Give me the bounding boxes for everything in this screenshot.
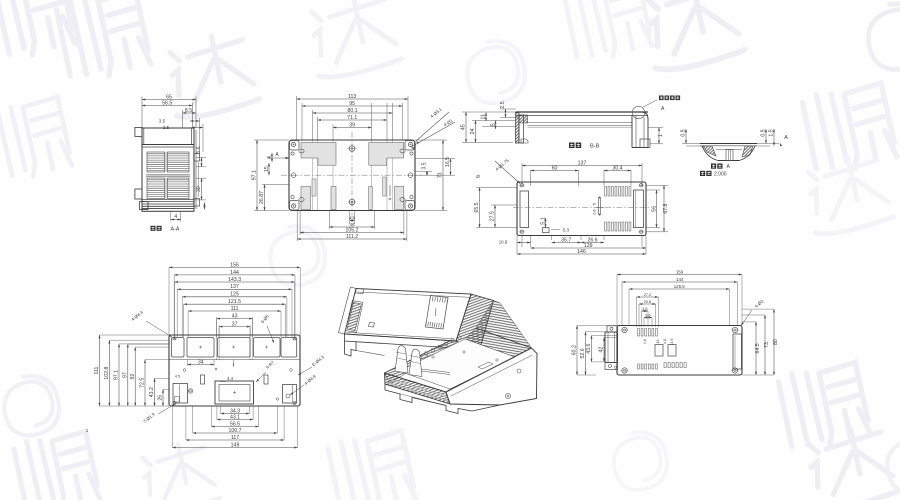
svg-text:27.5: 27.5 [490, 211, 496, 221]
svg-text:149: 149 [231, 442, 240, 448]
svg-text:80.1: 80.1 [347, 108, 357, 114]
svg-text:11: 11 [481, 114, 487, 119]
svg-text:5.3: 5.3 [563, 228, 570, 233]
svg-text:34: 34 [198, 359, 204, 365]
svg-text:143.3: 143.3 [228, 277, 241, 283]
svg-text:15: 15 [264, 166, 270, 172]
svg-text:A-A: A-A [171, 227, 180, 233]
svg-text:60.2: 60.2 [572, 345, 578, 355]
svg-text:4: 4 [267, 156, 273, 159]
svg-text:4.8: 4.8 [349, 216, 356, 221]
svg-text:43.1: 43.1 [230, 414, 240, 420]
svg-text:5.6: 5.6 [196, 146, 202, 153]
svg-text:4.8: 4.8 [663, 339, 667, 344]
svg-text:125.5: 125.5 [674, 284, 686, 289]
svg-text:4: 4 [174, 214, 177, 220]
svg-text:10.8: 10.8 [499, 240, 508, 245]
svg-text:95: 95 [349, 101, 355, 107]
svg-text:111: 111 [231, 306, 239, 312]
svg-text:60: 60 [552, 165, 558, 171]
svg-text:5.1: 5.1 [541, 217, 547, 224]
svg-text:20.8: 20.8 [644, 299, 652, 304]
svg-text:97: 97 [122, 372, 128, 378]
svg-text:B-B: B-B [590, 144, 600, 150]
svg-text:45: 45 [461, 124, 467, 130]
svg-text:26: 26 [158, 395, 164, 401]
svg-text:A: A [784, 135, 788, 141]
svg-text:35.7: 35.7 [561, 237, 571, 243]
svg-text:2.000: 2.000 [714, 171, 727, 177]
svg-text:27.2: 27.2 [644, 292, 652, 297]
svg-text:92: 92 [130, 374, 136, 380]
svg-text:71.1: 71.1 [347, 115, 357, 121]
svg-text:137: 137 [578, 160, 587, 166]
svg-text:39: 39 [349, 122, 355, 128]
svg-text:3.5: 3.5 [159, 119, 166, 124]
svg-text:121.5: 121.5 [228, 299, 241, 305]
svg-text:102.8: 102.8 [104, 366, 110, 379]
svg-text:16: 16 [656, 340, 660, 344]
svg-text:125: 125 [230, 292, 239, 298]
svg-text:64.5: 64.5 [755, 343, 761, 353]
svg-text:97.1: 97.1 [114, 370, 120, 380]
svg-text:24: 24 [470, 129, 476, 135]
svg-text:80: 80 [773, 339, 779, 345]
svg-text:117: 117 [231, 435, 239, 441]
svg-text:16.5: 16.5 [445, 157, 451, 167]
svg-text:39: 39 [196, 186, 202, 192]
svg-text:2.5: 2.5 [500, 101, 506, 108]
svg-text:0.8: 0.8 [643, 339, 647, 344]
svg-text:137: 137 [230, 284, 239, 290]
svg-text:67.8: 67.8 [663, 203, 669, 213]
svg-text:0.5: 0.5 [681, 129, 687, 136]
svg-text:97.1: 97.1 [252, 170, 258, 180]
svg-text:8.5: 8.5 [185, 108, 192, 114]
svg-text:1.5: 1.5 [769, 129, 775, 136]
svg-text:100.7: 100.7 [229, 428, 242, 434]
svg-text:144: 144 [676, 277, 684, 282]
svg-text:65.5: 65.5 [474, 202, 480, 212]
svg-text:46: 46 [349, 222, 355, 227]
svg-text:0.8: 0.8 [593, 209, 597, 214]
svg-text:9.6: 9.6 [645, 312, 650, 317]
svg-text:156: 156 [230, 262, 239, 268]
svg-text:146: 146 [577, 249, 586, 255]
svg-text:56: 56 [652, 206, 658, 212]
svg-text:72.5: 72.5 [140, 378, 146, 388]
svg-text:56.5: 56.5 [230, 421, 240, 427]
svg-text:2.5: 2.5 [163, 125, 170, 130]
svg-text:156: 156 [676, 269, 684, 274]
svg-text:5: 5 [491, 123, 497, 126]
svg-text:4.5: 4.5 [175, 375, 180, 379]
svg-text:43.6: 43.6 [586, 344, 592, 354]
svg-text:42: 42 [599, 347, 605, 353]
svg-text:0.5: 0.5 [761, 129, 767, 136]
svg-text:14.6: 14.6 [670, 339, 674, 346]
svg-text:37: 37 [232, 322, 238, 328]
svg-text:43.2: 43.2 [149, 387, 155, 397]
svg-text:56.5: 56.5 [162, 100, 172, 106]
svg-text:3.6: 3.6 [642, 306, 647, 311]
svg-text:30.4: 30.4 [612, 165, 622, 171]
svg-text:Ø: Ø [476, 174, 480, 179]
svg-text:73: 73 [438, 172, 444, 178]
svg-text:5: 5 [593, 203, 597, 205]
svg-text:26.87: 26.87 [259, 191, 265, 204]
svg-text:1: 1 [658, 134, 664, 137]
svg-text:111.2: 111.2 [346, 234, 358, 240]
svg-text:3.5: 3.5 [422, 162, 428, 169]
svg-text:73: 73 [764, 342, 770, 348]
svg-text:A: A [727, 164, 731, 170]
svg-text:105.2: 105.2 [346, 227, 359, 233]
svg-text:144: 144 [230, 270, 239, 276]
svg-text:111: 111 [94, 366, 100, 374]
svg-text:43: 43 [232, 314, 238, 320]
svg-text:113: 113 [348, 94, 356, 100]
svg-text:4.4: 4.4 [227, 376, 234, 381]
